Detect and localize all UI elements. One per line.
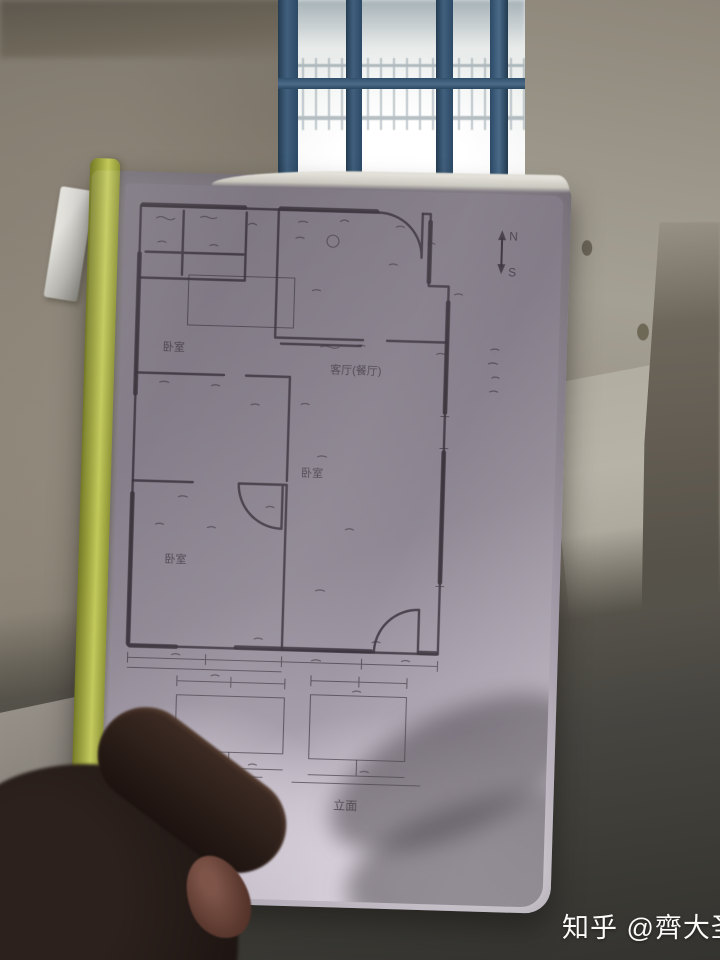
room-label: 卧室 — [163, 339, 185, 354]
compass: N S — [497, 229, 518, 280]
bottom-door-arc — [374, 609, 419, 654]
compass-south-label: S — [508, 265, 516, 279]
room-label: 卧室 — [301, 465, 323, 480]
compass-arrow — [501, 238, 502, 266]
middle-room-walls — [133, 372, 290, 481]
compass-north-label: N — [509, 229, 518, 243]
stove-symbol — [327, 235, 339, 247]
room-label: 卧室 — [164, 551, 186, 566]
kitchen-walls — [275, 210, 451, 349]
bedroom-walls-door — [128, 480, 287, 649]
dimension-line-bottom — [127, 652, 437, 676]
furniture-outline — [187, 275, 294, 328]
entry-door-arc — [378, 213, 423, 258]
closet-walls — [139, 209, 247, 280]
detail-dim-right-top — [311, 676, 407, 689]
room-label: 客厅(餐厅) — [330, 362, 382, 378]
photo-of-floorplan-in-unfinished-room: N S 卧室 客厅(餐厅) 卧室 卧室 立面 立面 知乎 @齊大圣 — [0, 0, 720, 960]
zhihu-watermark: 知乎 @齊大圣 — [562, 906, 720, 945]
detail-dim-left-top — [177, 676, 285, 689]
